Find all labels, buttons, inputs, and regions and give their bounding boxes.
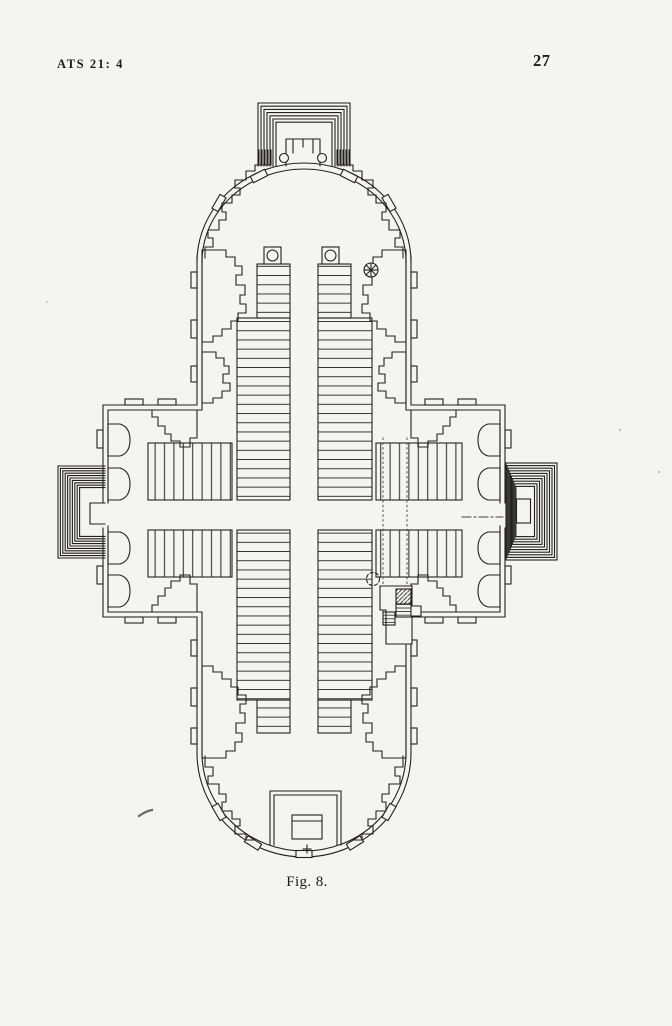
rosette-ornament [364,263,378,277]
pulpit-stair [367,573,422,645]
tower-column [280,154,289,163]
tower-column [318,154,327,163]
nave-pews [237,264,372,733]
chancel-apse-wall [197,753,411,857]
wall-pilasters [97,272,511,744]
altar [270,791,341,853]
upper-apse-wall [197,163,411,262]
transept-corner-piers [152,410,456,612]
nave-head-columns [264,247,339,264]
left-porch [58,466,105,558]
transept-pews [148,443,462,577]
right-porch [506,463,557,560]
church-floor-plan-figure [0,0,672,1026]
tower-porch [258,103,350,166]
nave-transept-walls [103,256,505,753]
figure-caption: Fig. 8. [247,874,367,891]
nave-interior-piers [202,250,406,758]
scanned-page: ATS 21: 4 27 [0,0,672,1026]
